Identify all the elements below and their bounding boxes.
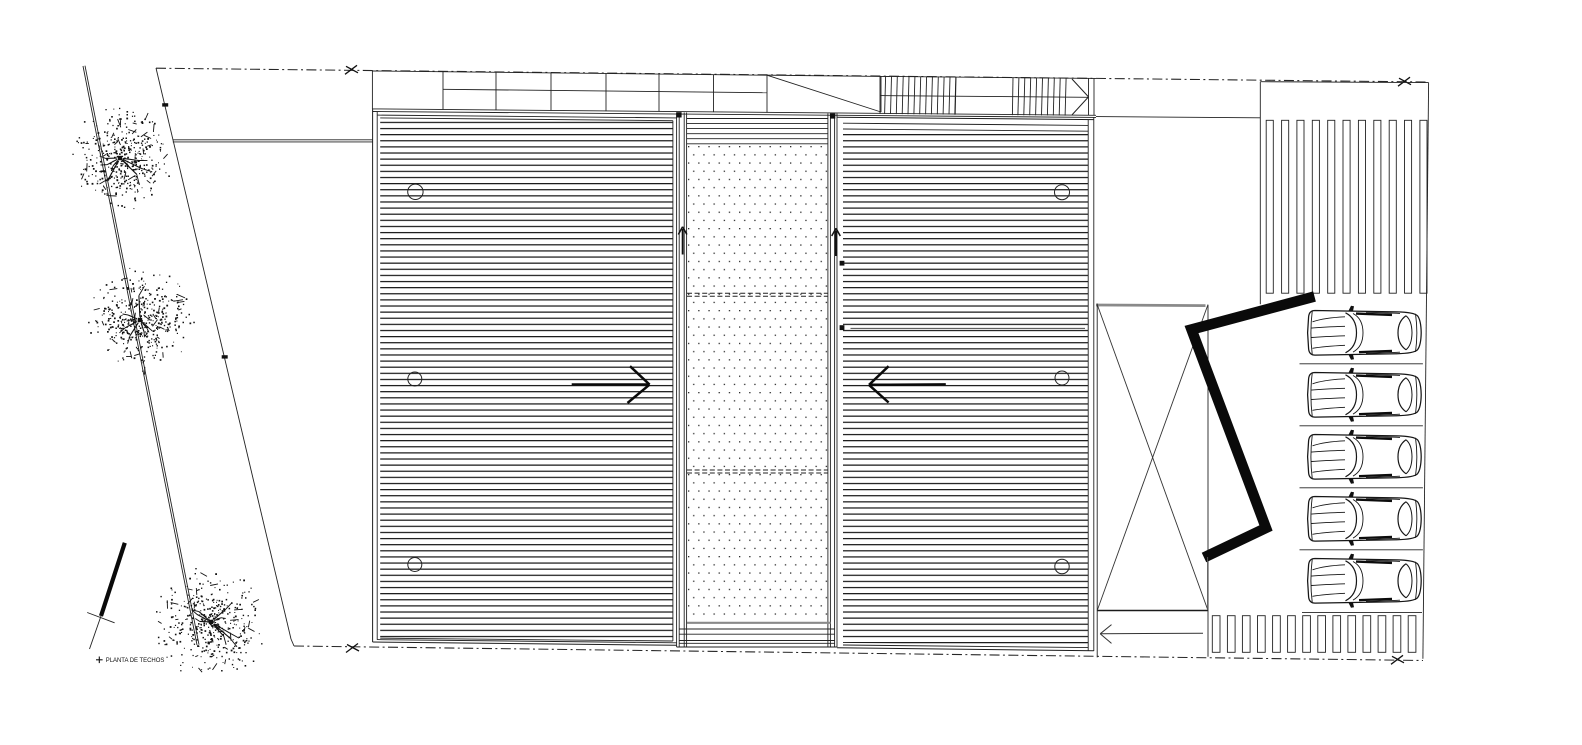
svg-text:PLANTA DE TECHOS: PLANTA DE TECHOS	[106, 658, 165, 664]
